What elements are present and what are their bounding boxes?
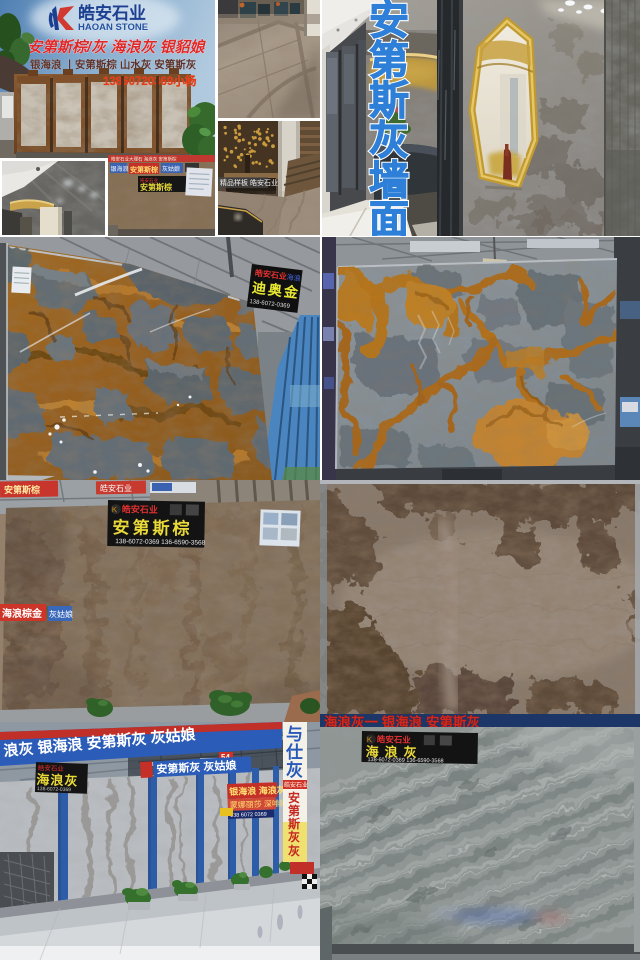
svg-text:墙: 墙 xyxy=(369,159,409,203)
svg-text:斯: 斯 xyxy=(369,79,409,123)
svg-text:皓安石业大理石 海浪灰 安第斯棕: 皓安石业大理石 海浪灰 安第斯棕 xyxy=(111,156,177,163)
svg-text:蒙娜丽莎 深啡网: 蒙娜丽莎 深啡网 xyxy=(230,798,289,810)
svg-text:13860720369小杨: 13860720369小杨 xyxy=(103,74,197,88)
svg-text:灰: 灰 xyxy=(286,760,303,780)
svg-text:第: 第 xyxy=(288,803,300,818)
svg-text:面: 面 xyxy=(369,198,409,236)
svg-text:安: 安 xyxy=(369,0,409,43)
svg-text:仕: 仕 xyxy=(285,742,303,762)
svg-text:皓安石业: 皓安石业 xyxy=(377,734,412,745)
svg-text:安第斯棕: 安第斯棕 xyxy=(4,484,40,495)
svg-text:皓安石业: 皓安石业 xyxy=(78,3,146,23)
svg-text:灰姑娘: 灰姑娘 xyxy=(162,165,180,173)
svg-text:K: K xyxy=(112,505,118,514)
svg-text:安第斯棕: 安第斯棕 xyxy=(112,517,192,538)
svg-text:斯: 斯 xyxy=(288,816,300,831)
svg-text:银海浪 海浪灰: 银海浪 海浪灰 xyxy=(229,784,286,797)
svg-text:皓安石业: 皓安石业 xyxy=(284,781,308,789)
svg-text:皓安石业: 皓安石业 xyxy=(100,483,132,493)
svg-text:海浪棕金: 海浪棕金 xyxy=(2,607,43,620)
svg-text:138 6072 0369: 138 6072 0369 xyxy=(230,812,267,819)
svg-text:安: 安 xyxy=(288,790,300,805)
svg-text:皓安石业: 皓安石业 xyxy=(122,503,158,515)
svg-text:灰: 灰 xyxy=(288,829,300,844)
svg-text:与: 与 xyxy=(286,725,303,744)
svg-text:第: 第 xyxy=(369,39,409,83)
svg-text:灰: 灰 xyxy=(288,843,300,858)
svg-text:银海浪: 银海浪 xyxy=(111,165,129,173)
svg-text:精品样板 皓安石业: 精品样板 皓安石业 xyxy=(220,178,278,187)
svg-text:HAOAN STONE: HAOAN STONE xyxy=(78,22,148,33)
svg-text:灰姑娘: 灰姑娘 xyxy=(49,609,73,619)
svg-text:安第斯棕: 安第斯棕 xyxy=(140,182,172,192)
svg-text:K: K xyxy=(367,735,373,744)
svg-text:灰: 灰 xyxy=(369,119,409,163)
svg-text:安第斯棕: 安第斯棕 xyxy=(130,165,158,174)
svg-text:安第斯棕/灰 海浪灰 银貂娘: 安第斯棕/灰 海浪灰 银貂娘 xyxy=(27,38,207,56)
svg-text:138-6072-0369: 138-6072-0369 xyxy=(37,786,71,793)
